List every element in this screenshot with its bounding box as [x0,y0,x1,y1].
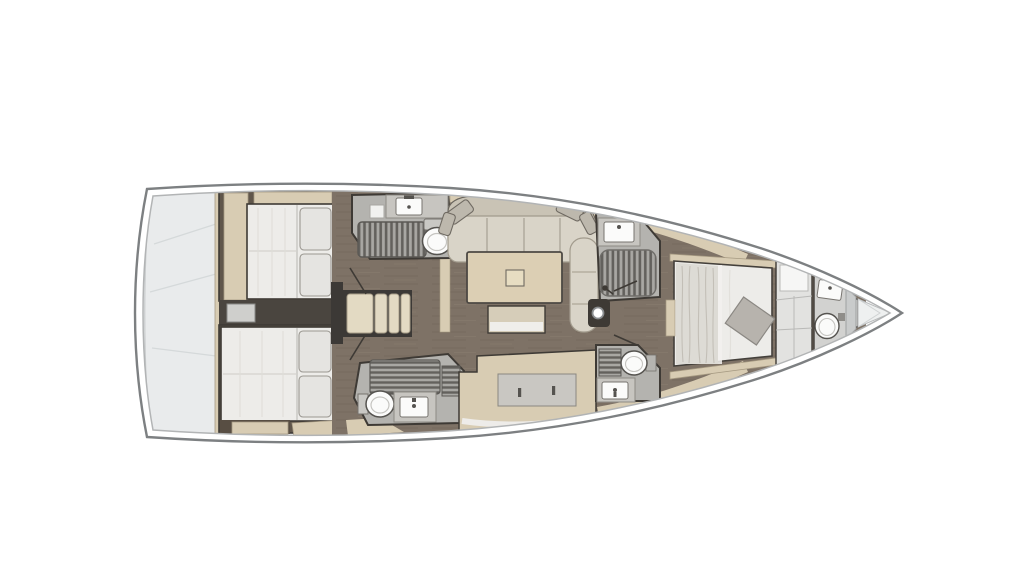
shelf [232,422,288,434]
aft-head-starboard [354,354,464,425]
owner-cabin [666,254,776,379]
pillow [300,208,331,250]
yacht-floor-plan [0,0,1024,576]
shelf [254,192,332,204]
step [347,294,373,333]
shower-grate [442,366,460,396]
faucet [412,404,416,408]
shower-grate [370,360,440,394]
engine-hatch [227,304,255,322]
pillow [300,254,331,296]
salon-bench [488,306,545,333]
faucet [613,388,617,392]
shower-grate [358,222,426,257]
mast [588,299,610,327]
aft-cabin-starboard [219,325,350,437]
salon-table [467,252,562,303]
aft-head-port [352,193,452,259]
companionway-steps [331,282,412,344]
mast-foot [593,308,604,319]
pillow [299,331,331,372]
step [401,294,410,333]
step [389,294,399,333]
double-bed [247,204,334,299]
pillow [299,376,331,417]
island-bed [674,261,775,366]
faucet [407,205,411,209]
wardrobe-strip [224,193,248,300]
faucet [828,286,832,290]
faucet [617,225,621,229]
double-bed [221,327,333,421]
mid-bulkhead [219,300,350,326]
worktop [498,374,576,406]
shower-grate [599,349,621,376]
aft-cabin-port [219,190,350,301]
locker-handle [552,386,555,395]
floor-plan-canvas [0,0,1024,576]
step [375,294,387,333]
shower-grate [600,250,656,296]
locker-handle [518,388,521,397]
